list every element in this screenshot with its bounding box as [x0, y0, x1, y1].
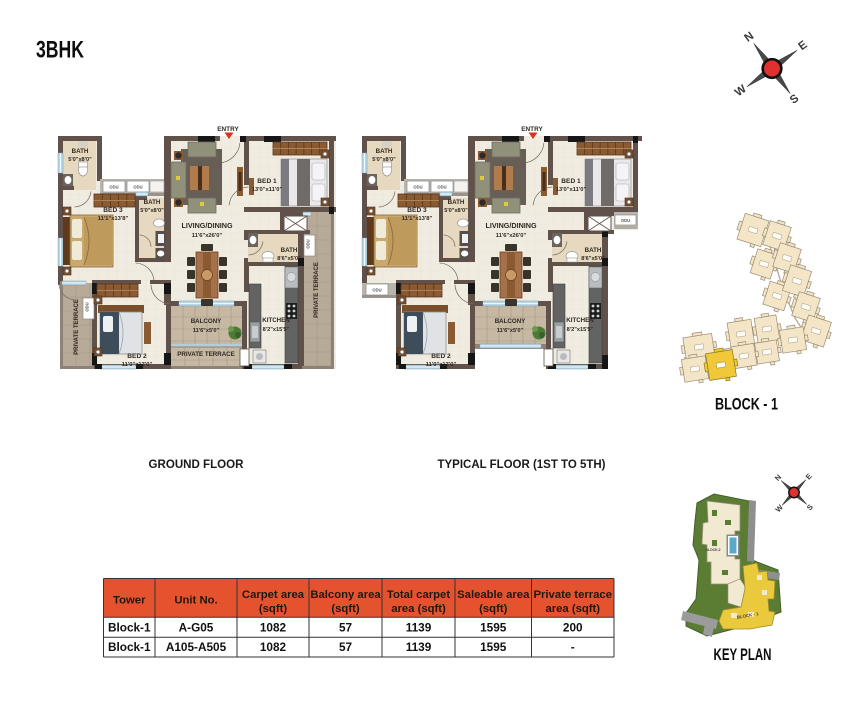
svg-text:11'6"x5'0": 11'6"x5'0"	[497, 328, 524, 334]
svg-text:11'6"x26'0": 11'6"x26'0"	[496, 233, 527, 239]
svg-text:11'0"x13'0": 11'0"x13'0"	[426, 362, 457, 368]
svg-text:1595: 1595	[480, 640, 507, 654]
svg-text:ODU: ODU	[85, 302, 90, 311]
svg-text:Total carpet: Total carpet	[387, 589, 450, 601]
svg-text:KITCHEN: KITCHEN	[262, 317, 290, 324]
svg-text:ODU: ODU	[413, 184, 422, 189]
svg-text:(sqft): (sqft)	[331, 603, 359, 615]
svg-text:A-G05: A-G05	[179, 620, 214, 634]
svg-text:BATH: BATH	[585, 247, 602, 254]
svg-text:13'0"x11'0": 13'0"x11'0"	[252, 187, 283, 193]
svg-text:BLOCK - 1: BLOCK - 1	[715, 396, 778, 414]
svg-text:1595: 1595	[480, 620, 507, 634]
svg-text:Block-1: Block-1	[108, 620, 151, 634]
svg-text:200: 200	[563, 620, 583, 634]
svg-text:(sqft): (sqft)	[259, 603, 287, 615]
svg-text:BATH: BATH	[72, 148, 89, 155]
svg-text:Private terrace: Private terrace	[533, 589, 612, 601]
svg-text:11'1"x13'8": 11'1"x13'8"	[98, 216, 129, 222]
svg-text:8'6"x5'0": 8'6"x5'0"	[277, 256, 301, 262]
svg-text:Block-1: Block-1	[108, 640, 151, 654]
svg-text:5'0"x8'0": 5'0"x8'0"	[68, 157, 92, 163]
svg-text:ODU: ODU	[109, 184, 118, 189]
svg-text:ENTRY: ENTRY	[521, 126, 543, 133]
svg-text:1139: 1139	[406, 620, 432, 634]
svg-text:PRIVATE TERRACE: PRIVATE TERRACE	[177, 351, 235, 358]
svg-text:BED 3: BED 3	[407, 207, 427, 214]
svg-text:13'0"x11'0": 13'0"x11'0"	[556, 187, 587, 193]
svg-text:-: -	[571, 640, 575, 654]
svg-text:PRIVATE TERRACE: PRIVATE TERRACE	[314, 262, 320, 318]
svg-text:BATH: BATH	[281, 247, 298, 254]
svg-text:BALCONY: BALCONY	[495, 318, 526, 325]
svg-text:KEY PLAN: KEY PLAN	[714, 646, 772, 664]
svg-text:TYPICAL FLOOR (1ST TO 5TH): TYPICAL FLOOR (1ST TO 5TH)	[438, 457, 606, 471]
svg-text:ODU: ODU	[133, 184, 142, 189]
svg-text:Balcony area: Balcony area	[310, 589, 381, 601]
svg-text:BATH: BATH	[376, 148, 393, 155]
svg-text:ENTRY: ENTRY	[217, 126, 239, 133]
svg-text:KITCHEN: KITCHEN	[566, 317, 594, 324]
svg-text:Carpet area: Carpet area	[242, 589, 305, 601]
svg-text:BED 2: BED 2	[127, 353, 147, 360]
svg-text:BED 2: BED 2	[431, 353, 451, 360]
svg-text:area (sqft): area (sqft)	[545, 603, 600, 615]
svg-text:Saleable area: Saleable area	[457, 589, 530, 601]
svg-text:BATH: BATH	[448, 199, 465, 206]
svg-text:Unit No.: Unit No.	[174, 595, 217, 607]
svg-text:57: 57	[339, 620, 353, 634]
svg-text:ODU: ODU	[437, 184, 446, 189]
svg-text:(sqft): (sqft)	[479, 603, 507, 615]
svg-text:LIVING/DINING: LIVING/DINING	[181, 221, 233, 230]
svg-text:5'0"x8'0": 5'0"x8'0"	[444, 208, 468, 214]
svg-text:8'2"x15'5": 8'2"x15'5"	[263, 327, 290, 333]
svg-text:8'6"x5'0": 8'6"x5'0"	[581, 256, 605, 262]
svg-text:11'0"x13'0": 11'0"x13'0"	[122, 362, 153, 368]
svg-text:BLOCK-2: BLOCK-2	[705, 548, 720, 552]
svg-text:3BHK: 3BHK	[36, 37, 84, 64]
svg-text:57: 57	[339, 640, 353, 654]
svg-text:1139: 1139	[406, 640, 432, 654]
svg-text:8'2"x15'5": 8'2"x15'5"	[567, 327, 594, 333]
svg-text:5'0"x8'0": 5'0"x8'0"	[140, 208, 164, 214]
svg-text:11'1"x13'8": 11'1"x13'8"	[402, 216, 433, 222]
svg-text:BED 1: BED 1	[257, 178, 277, 185]
svg-text:ODU: ODU	[372, 287, 381, 292]
svg-text:11'6"x26'0": 11'6"x26'0"	[192, 233, 223, 239]
svg-text:BED 3: BED 3	[103, 207, 123, 214]
svg-text:ODU: ODU	[621, 218, 630, 223]
svg-text:1082: 1082	[260, 620, 287, 634]
svg-text:LIVING/DINING: LIVING/DINING	[485, 221, 537, 230]
svg-text:BALCONY: BALCONY	[191, 318, 222, 325]
svg-text:area (sqft): area (sqft)	[391, 603, 446, 615]
svg-text:5'0"x8'0": 5'0"x8'0"	[372, 157, 396, 163]
svg-text:1082: 1082	[260, 640, 287, 654]
svg-text:ODU: ODU	[306, 239, 311, 248]
svg-text:GROUND FLOOR: GROUND FLOOR	[149, 457, 244, 471]
svg-text:BED 1: BED 1	[561, 178, 581, 185]
svg-text:Tower: Tower	[113, 595, 146, 607]
svg-text:PRIVATE TERRACE: PRIVATE TERRACE	[74, 299, 80, 355]
svg-text:A105-A505: A105-A505	[166, 640, 227, 654]
svg-text:BATH: BATH	[144, 199, 161, 206]
svg-text:11'6"x5'0": 11'6"x5'0"	[193, 328, 220, 334]
